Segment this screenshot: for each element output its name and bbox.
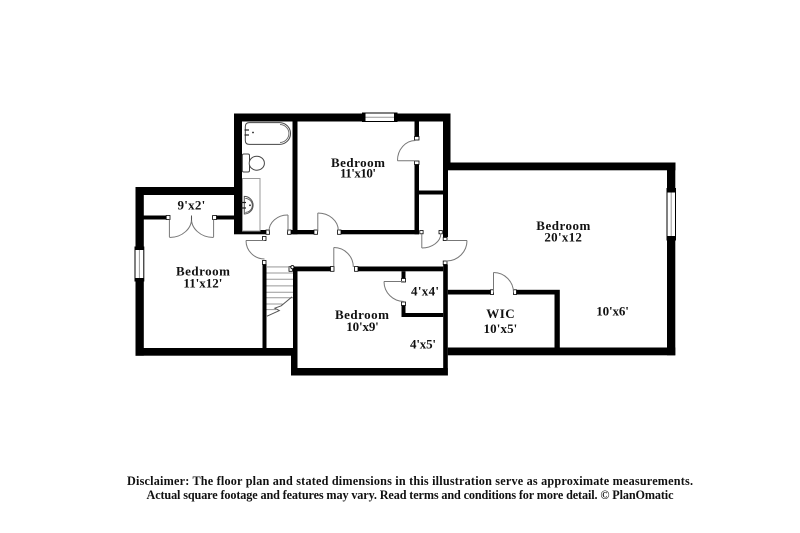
svg-text:WIC: WIC <box>486 306 514 321</box>
svg-text:20'x12: 20'x12 <box>544 230 582 245</box>
svg-text:4'x4': 4'x4' <box>411 283 439 298</box>
svg-text:10'x6': 10'x6' <box>596 304 629 319</box>
svg-text:9'x2': 9'x2' <box>178 198 206 213</box>
svg-text:11'x12': 11'x12' <box>183 275 222 290</box>
svg-text:10'x9': 10'x9' <box>346 319 379 334</box>
svg-text:Disclaimer: The floor plan and: Disclaimer: The floor plan and stated di… <box>127 474 693 488</box>
svg-text:10'x5': 10'x5' <box>484 321 518 336</box>
svg-text:4'x5': 4'x5' <box>410 336 436 351</box>
svg-text:Actual square footage and feat: Actual square footage and features may v… <box>147 488 675 502</box>
svg-text:11'x10': 11'x10' <box>340 165 376 180</box>
